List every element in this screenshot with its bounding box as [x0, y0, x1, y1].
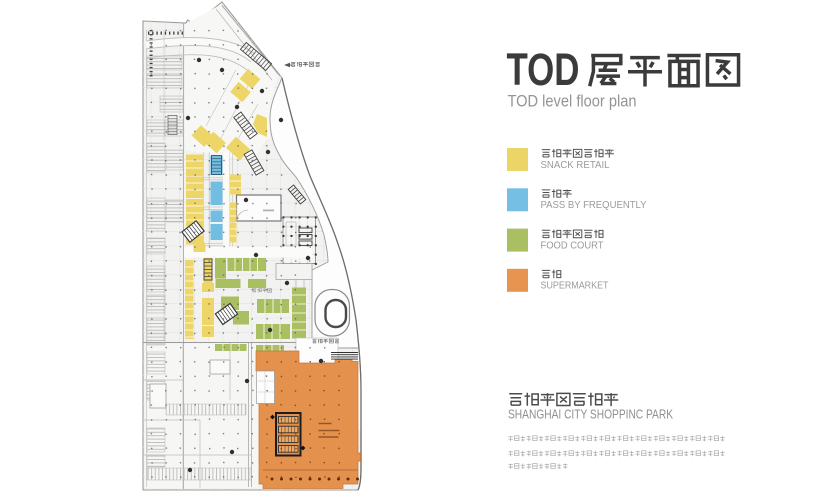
svg-text:TOD: TOD [507, 44, 580, 95]
svg-text:PASS BY FREQUENTLY: PASS BY FREQUENTLY [541, 199, 647, 211]
svg-text:SNACK RETAIL: SNACK RETAIL [541, 159, 610, 171]
svg-text:SUPERMARKET: SUPERMARKET [541, 280, 609, 292]
svg-text:SHANGHAI CITY SHOPPINC PARK: SHANGHAI CITY SHOPPINC PARK [508, 407, 674, 421]
svg-text:FOOD COURT: FOOD COURT [541, 239, 605, 251]
svg-text:TOD level floor plan: TOD level floor plan [508, 93, 637, 111]
